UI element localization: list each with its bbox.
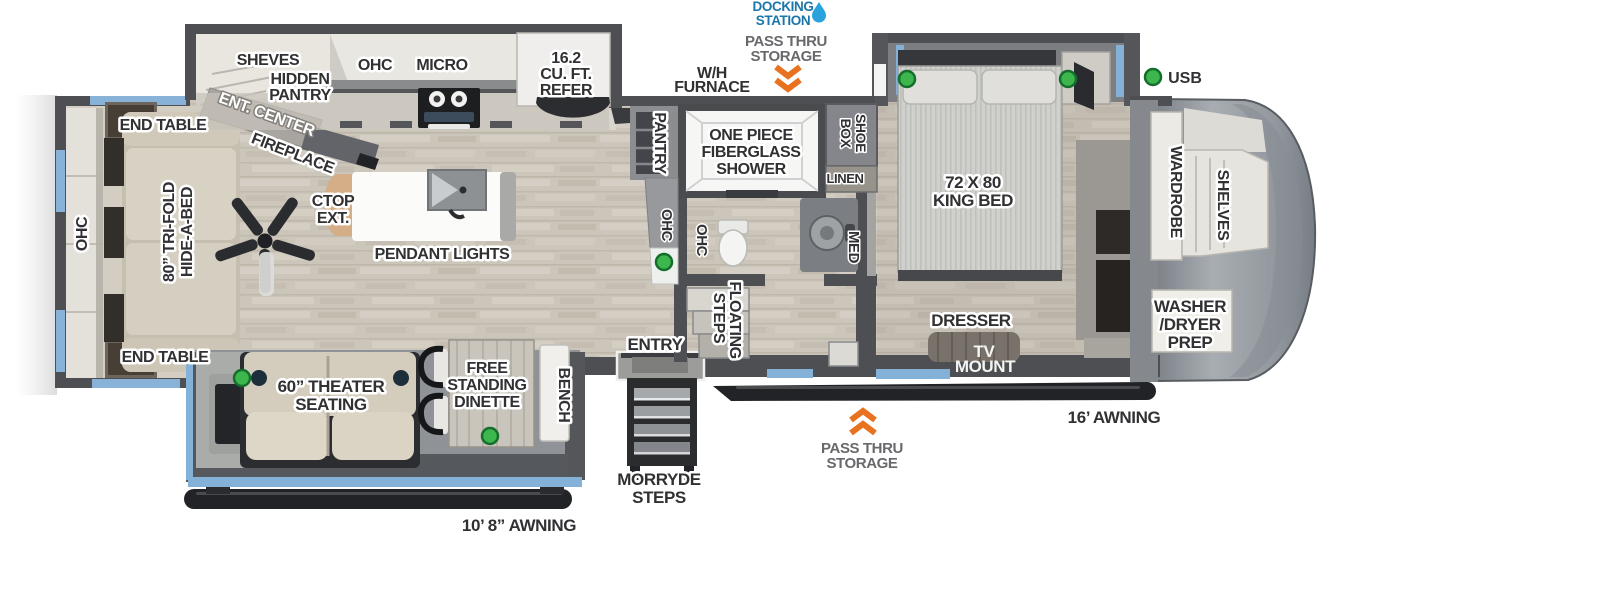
svg-text:MICRO: MICRO [416, 57, 467, 74]
svg-text:STANDING: STANDING [447, 377, 526, 394]
svg-text:FURNACE: FURNACE [674, 79, 750, 96]
svg-text:OHC: OHC [358, 57, 393, 74]
svg-text:16’ AWNING: 16’ AWNING [1068, 408, 1161, 427]
svg-text:FIBERGLASS: FIBERGLASS [701, 144, 801, 161]
svg-text:DRESSER: DRESSER [931, 311, 1011, 330]
svg-text:MORRYDE: MORRYDE [617, 470, 701, 489]
svg-text:REFER: REFER [540, 82, 593, 99]
svg-text:KING BED: KING BED [933, 191, 1013, 210]
svg-text:FREE: FREE [466, 360, 508, 377]
svg-text:BOX: BOX [838, 118, 854, 148]
svg-text:FLOATING: FLOATING [726, 281, 743, 358]
svg-text:PANTRY: PANTRY [269, 87, 331, 104]
svg-text:BENCH: BENCH [555, 368, 572, 423]
svg-text:10’ 8” AWNING: 10’ 8” AWNING [462, 516, 576, 535]
svg-text:DINETTE: DINETTE [454, 394, 520, 411]
svg-text:STEPS: STEPS [710, 293, 727, 344]
svg-text:60” THEATER: 60” THEATER [278, 377, 385, 396]
svg-text:STORAGE: STORAGE [826, 455, 897, 472]
svg-text:PANTRY: PANTRY [651, 112, 668, 174]
svg-text:16.2: 16.2 [551, 50, 581, 67]
svg-text:OHC: OHC [693, 224, 710, 257]
svg-text:STATION: STATION [756, 13, 810, 28]
svg-text:ENTRY: ENTRY [628, 335, 684, 354]
svg-text:72 X 80: 72 X 80 [945, 173, 1001, 192]
svg-text:MOUNT: MOUNT [955, 357, 1016, 376]
svg-text:SHELVES: SHELVES [1214, 170, 1231, 241]
svg-text:END TABLE: END TABLE [120, 117, 207, 134]
svg-text:ONE PIECE: ONE PIECE [709, 127, 793, 144]
svg-text:LINEN: LINEN [826, 171, 863, 186]
svg-text:DOCKING: DOCKING [753, 0, 814, 14]
svg-text:CTOP: CTOP [312, 193, 355, 210]
svg-text:STORAGE: STORAGE [750, 48, 821, 65]
svg-text:80” TRI-FOLD: 80” TRI-FOLD [161, 182, 178, 282]
svg-text:HIDE-A-BED: HIDE-A-BED [179, 187, 196, 277]
svg-text:WASHER: WASHER [1154, 297, 1226, 316]
svg-text:USB: USB [1168, 70, 1202, 87]
svg-text:HIDDEN: HIDDEN [271, 71, 330, 88]
svg-text:PENDANT LIGHTS: PENDANT LIGHTS [375, 246, 511, 263]
svg-text:SHOE: SHOE [853, 114, 869, 152]
svg-text:PREP: PREP [1168, 333, 1213, 352]
svg-text:STEPS: STEPS [632, 488, 686, 507]
svg-text:/DRYER: /DRYER [1159, 315, 1220, 334]
svg-text:SHOWER: SHOWER [716, 161, 786, 178]
svg-text:END TABLE: END TABLE [122, 349, 209, 366]
svg-text:OHC: OHC [658, 209, 675, 242]
svg-text:CU. FT.: CU. FT. [540, 66, 591, 83]
svg-text:SHEVES: SHEVES [237, 52, 300, 69]
svg-text:EXT.: EXT. [317, 210, 349, 227]
svg-text:WARDROBE: WARDROBE [1167, 146, 1184, 239]
svg-text:SEATING: SEATING [295, 395, 367, 414]
svg-text:OHC: OHC [74, 216, 91, 251]
svg-text:MED: MED [845, 231, 862, 264]
